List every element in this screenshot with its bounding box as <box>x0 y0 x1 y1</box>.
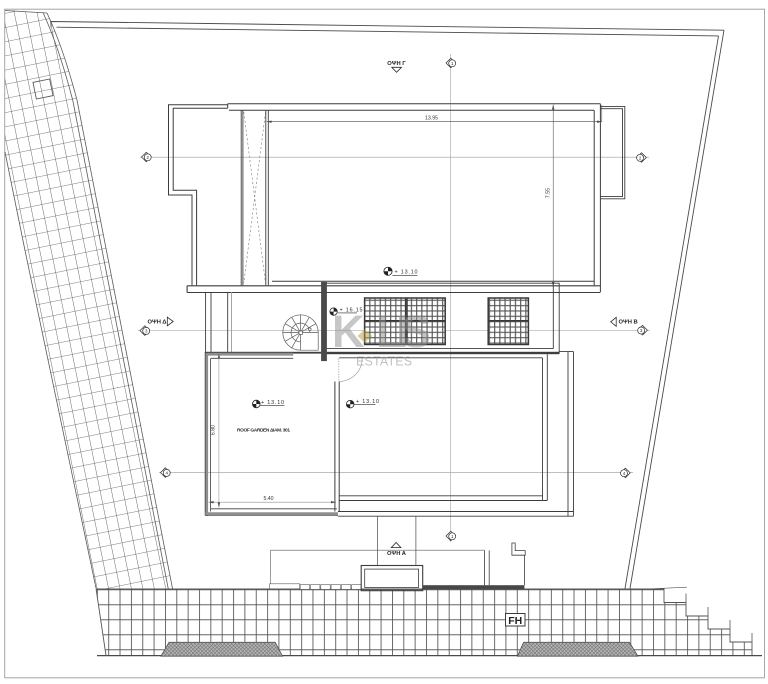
svg-text:ROOF GARDEN ΔIAM. 301: ROOF GARDEN ΔIAM. 301 <box>237 428 290 434</box>
svg-text:ΟΨΗ Α: ΟΨΗ Α <box>387 551 407 557</box>
svg-text:FH: FH <box>508 615 522 627</box>
svg-text:6.80: 6.80 <box>211 425 217 435</box>
svg-text:7.55: 7.55 <box>546 188 552 198</box>
svg-text:+ 13.10: + 13.10 <box>395 269 418 275</box>
svg-text:5.40: 5.40 <box>263 496 273 502</box>
svg-text:ΟΨΗ Γ: ΟΨΗ Γ <box>387 61 406 67</box>
svg-text:ΟΨΗ Δ: ΟΨΗ Δ <box>148 320 167 326</box>
svg-text:ΟΨΗ Β: ΟΨΗ Β <box>619 320 638 326</box>
svg-text:+ 13.10: + 13.10 <box>356 399 379 405</box>
svg-text:LIS: LIS <box>376 306 431 357</box>
svg-text:13.95: 13.95 <box>425 116 438 122</box>
svg-text:K: K <box>332 306 365 357</box>
svg-text:ESTATES: ESTATES <box>356 355 414 369</box>
